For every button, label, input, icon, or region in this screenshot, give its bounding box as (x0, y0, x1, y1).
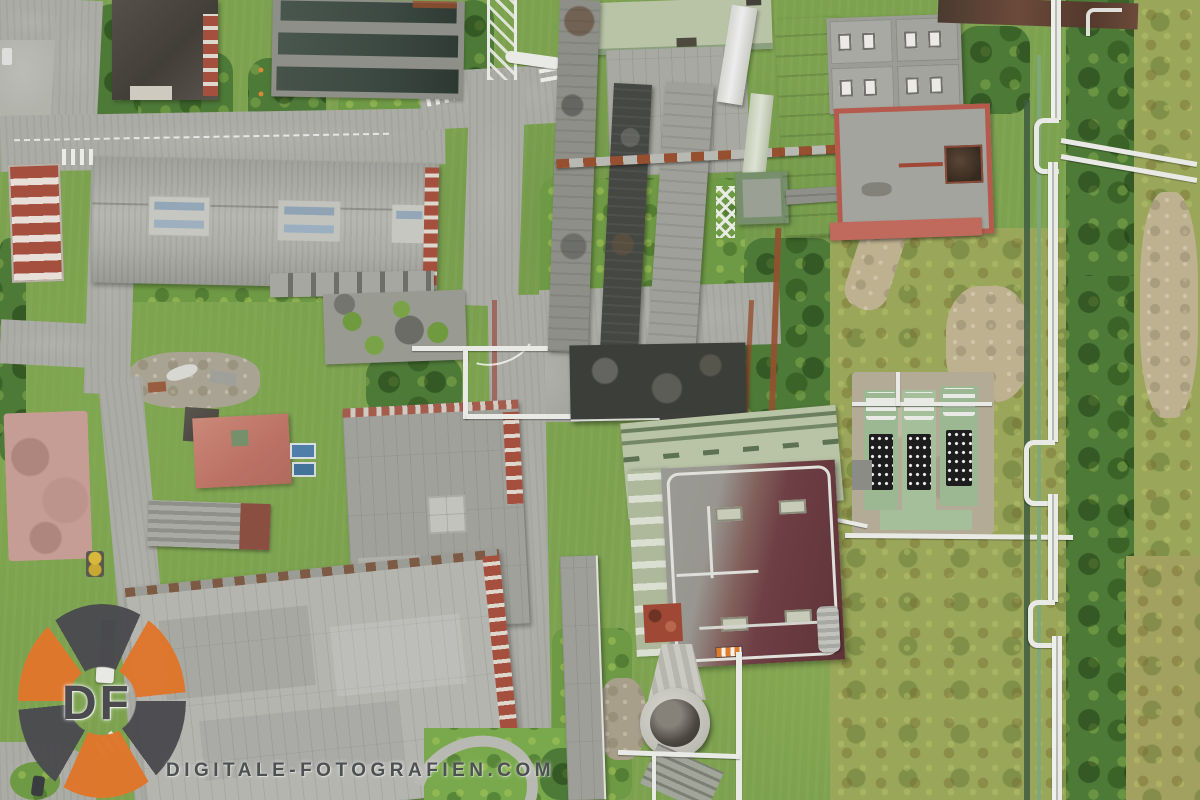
conveyor-head-house (735, 171, 789, 225)
roof-skylight (715, 506, 743, 521)
roof-skylight (779, 499, 807, 514)
chimney-inner-bore (650, 699, 700, 747)
house-brick-wall (203, 14, 218, 96)
watermark-site-text: DIGITALE-FOTOGRAFIEN.COM (166, 760, 555, 782)
shed-red-section (239, 503, 271, 550)
long-factory-hall (91, 156, 440, 289)
yard-pipe (896, 372, 900, 406)
road-branch-west (0, 319, 109, 369)
overgrown-flat-roof (323, 290, 467, 365)
container-window (864, 79, 878, 96)
unit-pipe-manifold (866, 392, 896, 420)
equipment-yard-pad (852, 372, 994, 534)
factory-cornice-rust (125, 549, 500, 597)
junkyard-ground (128, 352, 260, 408)
skylight (284, 224, 334, 233)
green-skid-unit (902, 390, 936, 510)
unit-pipe-manifold (904, 392, 934, 420)
steel-lattice (716, 186, 735, 238)
blue-pool (292, 462, 316, 477)
watermark-logo-text: DF (62, 676, 132, 731)
container-window (905, 77, 919, 94)
head-house-roof (742, 178, 781, 217)
container-window (840, 79, 854, 96)
pipe-rack-truss (487, 0, 517, 80)
pipe-bend-top-right (1086, 8, 1122, 36)
roof-cylinder-tank (816, 606, 840, 653)
gray-cabinet (852, 460, 872, 490)
container-window (862, 33, 876, 50)
roof-vent-green (231, 430, 249, 447)
roof-vent-dark (746, 0, 761, 6)
skylight (396, 211, 422, 220)
east-gable-brick (423, 167, 439, 285)
container-unit (831, 66, 894, 111)
road-top-left-vertical (51, 0, 103, 123)
pipeline-expansion-loop (1028, 600, 1055, 648)
container-units-block (826, 14, 963, 115)
road-center-vertical-upper (462, 71, 526, 307)
house-top-left (112, 0, 218, 100)
house-gable (130, 86, 172, 100)
container-window (838, 34, 852, 51)
long-shed (147, 500, 271, 550)
pipe-drop-bottom (652, 756, 656, 800)
roof-panel-skylights (278, 200, 341, 241)
valve-dot-panel (869, 434, 893, 490)
rusty-pad (643, 603, 683, 643)
central-building-main-roof (661, 460, 845, 669)
dirt-bottom-right (1126, 556, 1200, 800)
container-unit (895, 17, 958, 62)
car-white-top-left (2, 48, 12, 65)
container-window (904, 31, 918, 48)
basin-water (276, 66, 458, 93)
yellow-vehicle (86, 551, 104, 577)
pipeline-main (1048, 162, 1058, 442)
dirt-near-chimney (598, 678, 646, 760)
container-unit (829, 19, 892, 64)
road-top-edge (0, 0, 62, 44)
roof-vent-dark (676, 37, 696, 47)
skylight (154, 202, 204, 211)
pipeline-main (1052, 636, 1062, 800)
brick-building-left-edge (8, 163, 64, 283)
tree-band-right (1066, 276, 1138, 544)
roof-skylight-square (427, 494, 467, 534)
junk-rusty (148, 381, 167, 393)
basin-water (278, 32, 458, 57)
pink-roof-house (192, 414, 292, 489)
roof-perimeter-pipe-rail (666, 465, 840, 663)
container-window (929, 76, 943, 93)
roof-hole-dark (944, 145, 983, 184)
water-treatment-basins (271, 0, 465, 100)
pipe-vertical-bottom (736, 652, 742, 800)
container-unit (897, 64, 960, 109)
valve-dot-panel (907, 434, 931, 490)
vertical-walkway (560, 555, 606, 800)
chimney-mouth-ring (640, 688, 710, 758)
container-window (928, 30, 942, 47)
blue-pool (290, 443, 316, 459)
aerial-photo-industrial-site: DF DIGITALE-FOTOGRAFIEN.COM (0, 0, 1200, 800)
dirt-patch-right (1140, 192, 1198, 418)
pipe-vertical (463, 349, 468, 419)
pipeline-main (1048, 494, 1058, 602)
red-beam (899, 162, 943, 168)
yard-pipe (852, 402, 992, 406)
pink-concrete-pad (3, 411, 92, 562)
green-slab (880, 510, 972, 530)
vegetation-top-right-of-containers (958, 26, 1030, 114)
pipeline-main (1051, 0, 1061, 120)
green-skid-unit (864, 390, 898, 510)
skylight (284, 206, 334, 215)
skylight (154, 220, 204, 229)
valve-dot-panel (946, 430, 972, 486)
roof-ridge-line (92, 202, 438, 211)
roof-panel-skylights (148, 196, 211, 237)
roof-debris (861, 182, 891, 197)
roof-section-lighter (330, 613, 467, 696)
roof-panel-skylights (392, 205, 427, 244)
dark-bunker-roof (569, 342, 746, 421)
pipe-horizontal (466, 414, 580, 419)
basin-rust-equipment (413, 1, 457, 9)
